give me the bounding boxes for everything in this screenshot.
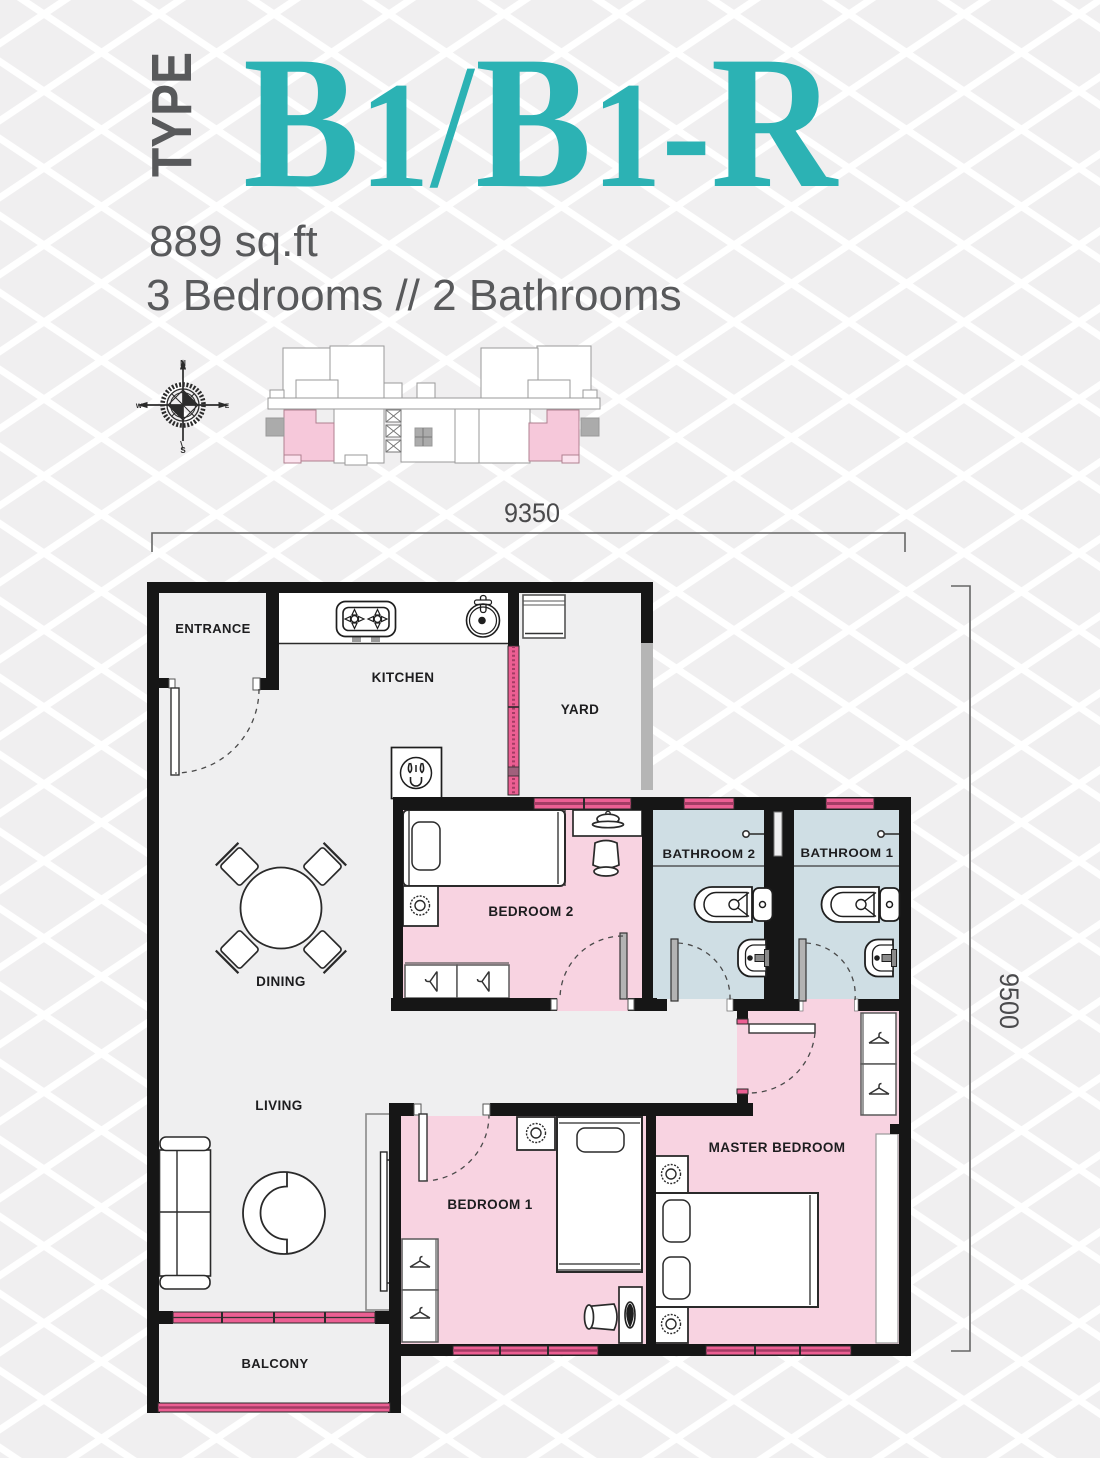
svg-text:S: S (180, 446, 186, 455)
svg-text:LIVING: LIVING (255, 1098, 302, 1113)
svg-text:YARD: YARD (561, 702, 600, 717)
svg-text:BATHROOM 2: BATHROOM 2 (663, 849, 756, 861)
svg-text:B1/B1-R: B1/B1-R (243, 18, 839, 228)
svg-text:TYPE: TYPE (140, 52, 204, 177)
svg-text:ENTRANCE: ENTRANCE (175, 621, 250, 636)
svg-text:MASTER BEDROOM: MASTER BEDROOM (709, 1140, 846, 1155)
svg-text:W: W (136, 403, 143, 410)
svg-text:BATHROOM 1: BATHROOM 1 (801, 848, 894, 860)
svg-text:BEDROOM 1: BEDROOM 1 (447, 1197, 532, 1212)
svg-text:BEDROOM 2: BEDROOM 2 (488, 904, 573, 919)
svg-text:9500: 9500 (994, 973, 1024, 1029)
svg-text:889 sq.ft: 889 sq.ft (149, 217, 318, 266)
svg-text:E: E (225, 403, 230, 410)
svg-text:DINING: DINING (256, 974, 306, 989)
svg-text:KITCHEN: KITCHEN (372, 670, 435, 685)
svg-text:N: N (180, 359, 186, 368)
svg-text:BALCONY: BALCONY (241, 1356, 308, 1371)
svg-text:9350: 9350 (504, 498, 560, 528)
svg-text:3 Bedrooms // 2 Bathrooms: 3 Bedrooms // 2 Bathrooms (146, 271, 682, 320)
